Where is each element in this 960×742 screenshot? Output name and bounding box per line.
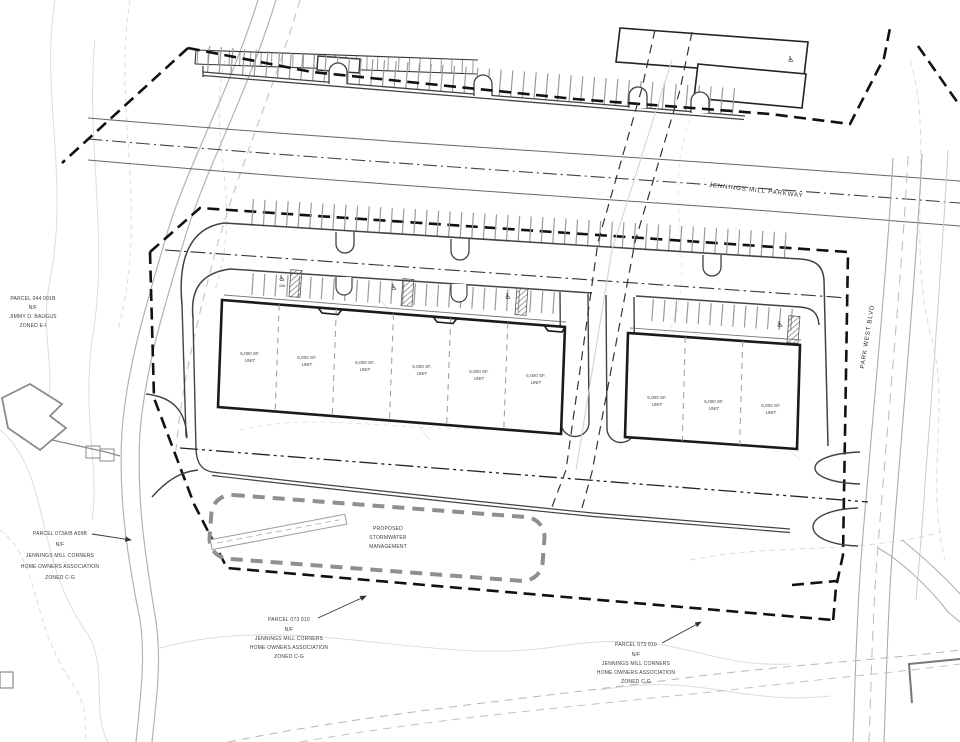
access-aisle-hatch <box>515 288 528 316</box>
svg-text:ZONED C-G: ZONED C-G <box>45 575 75 581</box>
boundary-northeast <box>918 46 960 106</box>
curb-island <box>336 232 354 253</box>
right-building-outline <box>625 333 800 449</box>
accessible-parking-icon: ♿ <box>390 283 397 292</box>
side-road-southeast <box>902 540 960 594</box>
svg-text:5,000 SF.: 5,000 SF. <box>240 351 259 356</box>
svg-text:N/F: N/F <box>29 305 38 311</box>
svg-text:5,000 SF.: 5,000 SF. <box>355 360 374 365</box>
curb-island <box>451 239 469 260</box>
svg-text:5,000 SF.: 5,000 SF. <box>469 369 488 374</box>
accessible-parking-icon: ♿ <box>787 55 794 64</box>
svg-text:N/F: N/F <box>632 652 641 658</box>
drive-aisle-centerline <box>165 250 848 298</box>
leader-line <box>662 622 701 643</box>
svg-text:UNIT: UNIT <box>531 380 542 385</box>
svg-text:PARCEL 073 010: PARCEL 073 010 <box>268 617 310 623</box>
curb-island <box>474 75 492 96</box>
svg-text:5,000 SF.: 5,000 SF. <box>526 373 545 378</box>
van-label: VAN <box>279 284 286 288</box>
svg-text:UNIT: UNIT <box>709 406 720 411</box>
svg-text:UNIT: UNIT <box>360 367 371 372</box>
svg-text:UNIT: UNIT <box>766 410 777 415</box>
svg-text:UNIT: UNIT <box>302 362 313 367</box>
blvd-road-label: PARK WEST BLVD <box>859 304 876 369</box>
left-building-outline <box>218 300 565 434</box>
svg-text:JIMMY D. BAUGUS: JIMMY D. BAUGUS <box>9 314 57 320</box>
parcel-label-hoa-southeast: PARCEL 073 010 N/F JENNINGS MILL CORNERS… <box>597 622 701 685</box>
exit-curb-return <box>813 508 858 546</box>
svg-text:5,000 SF.: 5,000 SF. <box>297 355 316 360</box>
svg-text:JENNINGS MILL CORNERS: JENNINGS MILL CORNERS <box>602 661 671 667</box>
svg-text:HOME OWNERS ASSOCIATION: HOME OWNERS ASSOCIATION <box>597 670 676 676</box>
svg-text:PARCEL 073 010: PARCEL 073 010 <box>615 642 657 648</box>
entrance-curb-return <box>146 394 187 438</box>
parkway-road-label: JENNINGS MILL PARKWAY <box>709 182 804 200</box>
pond-spillway <box>210 514 346 549</box>
svg-text:ZONED E-I: ZONED E-I <box>19 323 46 329</box>
bottom-roads <box>228 650 960 742</box>
parcel-label-hoa-south: PARCEL 073 010 N/F JENNINGS MILL CORNERS… <box>250 596 366 660</box>
svg-text:JENNINGS MILL CORNERS: JENNINGS MILL CORNERS <box>255 636 324 642</box>
svg-text:MANAGEMENT: MANAGEMENT <box>369 544 407 550</box>
site-plan-sheet: ♿ JENNINGS MILL PARKWAY PARK WEST BLVD <box>0 0 960 742</box>
svg-text:UNIT: UNIT <box>417 371 428 376</box>
svg-text:5,000 SF.: 5,000 SF. <box>761 403 780 408</box>
access-aisle-hatch <box>289 270 302 298</box>
accessible-parking-icon: ♿ <box>776 320 783 329</box>
left-building: 5,000 SF.UNIT 5,000 SF.UNIT 5,000 SF.UNI… <box>218 295 566 434</box>
stormwater-label: PROPOSED STORMWATER MANAGEMENT <box>369 526 407 550</box>
leader-line <box>318 596 366 618</box>
svg-text:UNIT: UNIT <box>474 376 485 381</box>
curb-island <box>451 284 467 302</box>
accessible-parking-icon: ♿ <box>504 292 511 301</box>
svg-text:UNIT: UNIT <box>245 358 256 363</box>
curb-island <box>336 277 352 295</box>
parcel-label-baugus: PARCEL 044 001B N/F JIMMY D. BAUGUS ZONE… <box>9 296 57 329</box>
neighbor-building-southeast <box>909 659 960 703</box>
svg-text:5,000 SF.: 5,000 SF. <box>647 395 666 400</box>
svg-text:N/F: N/F <box>285 627 294 633</box>
svg-text:JENNINGS MILL CORNERS: JENNINGS MILL CORNERS <box>26 553 95 559</box>
svg-text:HOME OWNERS ASSOCIATION: HOME OWNERS ASSOCIATION <box>21 564 100 570</box>
exit-curb-return <box>815 452 860 484</box>
old-lot-line <box>180 448 868 502</box>
access-aisle-hatch <box>401 279 414 307</box>
right-building: 5,000 SF.UNIT 5,000 SF.UNIT 5,000 SF.UNI… <box>625 328 801 449</box>
svg-text:HOME OWNERS ASSOCIATION: HOME OWNERS ASSOCIATION <box>250 645 329 651</box>
boundary-jog <box>792 581 836 585</box>
svg-text:ZONED C-G: ZONED C-G <box>621 679 651 685</box>
curb-island <box>703 255 721 276</box>
svg-text:PARCEL 044 001B: PARCEL 044 001B <box>10 296 56 302</box>
svg-text:N/F: N/F <box>56 542 65 548</box>
site-plan-drawing: ♿ JENNINGS MILL PARKWAY PARK WEST BLVD <box>0 0 960 742</box>
svg-text:5,000 SF.: 5,000 SF. <box>704 399 723 404</box>
park-west-blvd: PARK WEST BLVD <box>853 150 960 742</box>
svg-text:PROPOSED: PROPOSED <box>373 526 403 532</box>
svg-text:ZONED C-G: ZONED C-G <box>274 654 304 660</box>
svg-text:PARCEL 073A/B A09B: PARCEL 073A/B A09B <box>33 531 88 537</box>
accessible-parking-icon: ♿ <box>278 274 285 283</box>
svg-text:STORMWATER: STORMWATER <box>369 535 407 541</box>
svg-text:UNIT: UNIT <box>652 402 663 407</box>
svg-text:5,000 SF.: 5,000 SF. <box>412 364 431 369</box>
parcel-label-hoa-west: PARCEL 073A/B A09B N/F JENNINGS MILL COR… <box>21 531 131 581</box>
